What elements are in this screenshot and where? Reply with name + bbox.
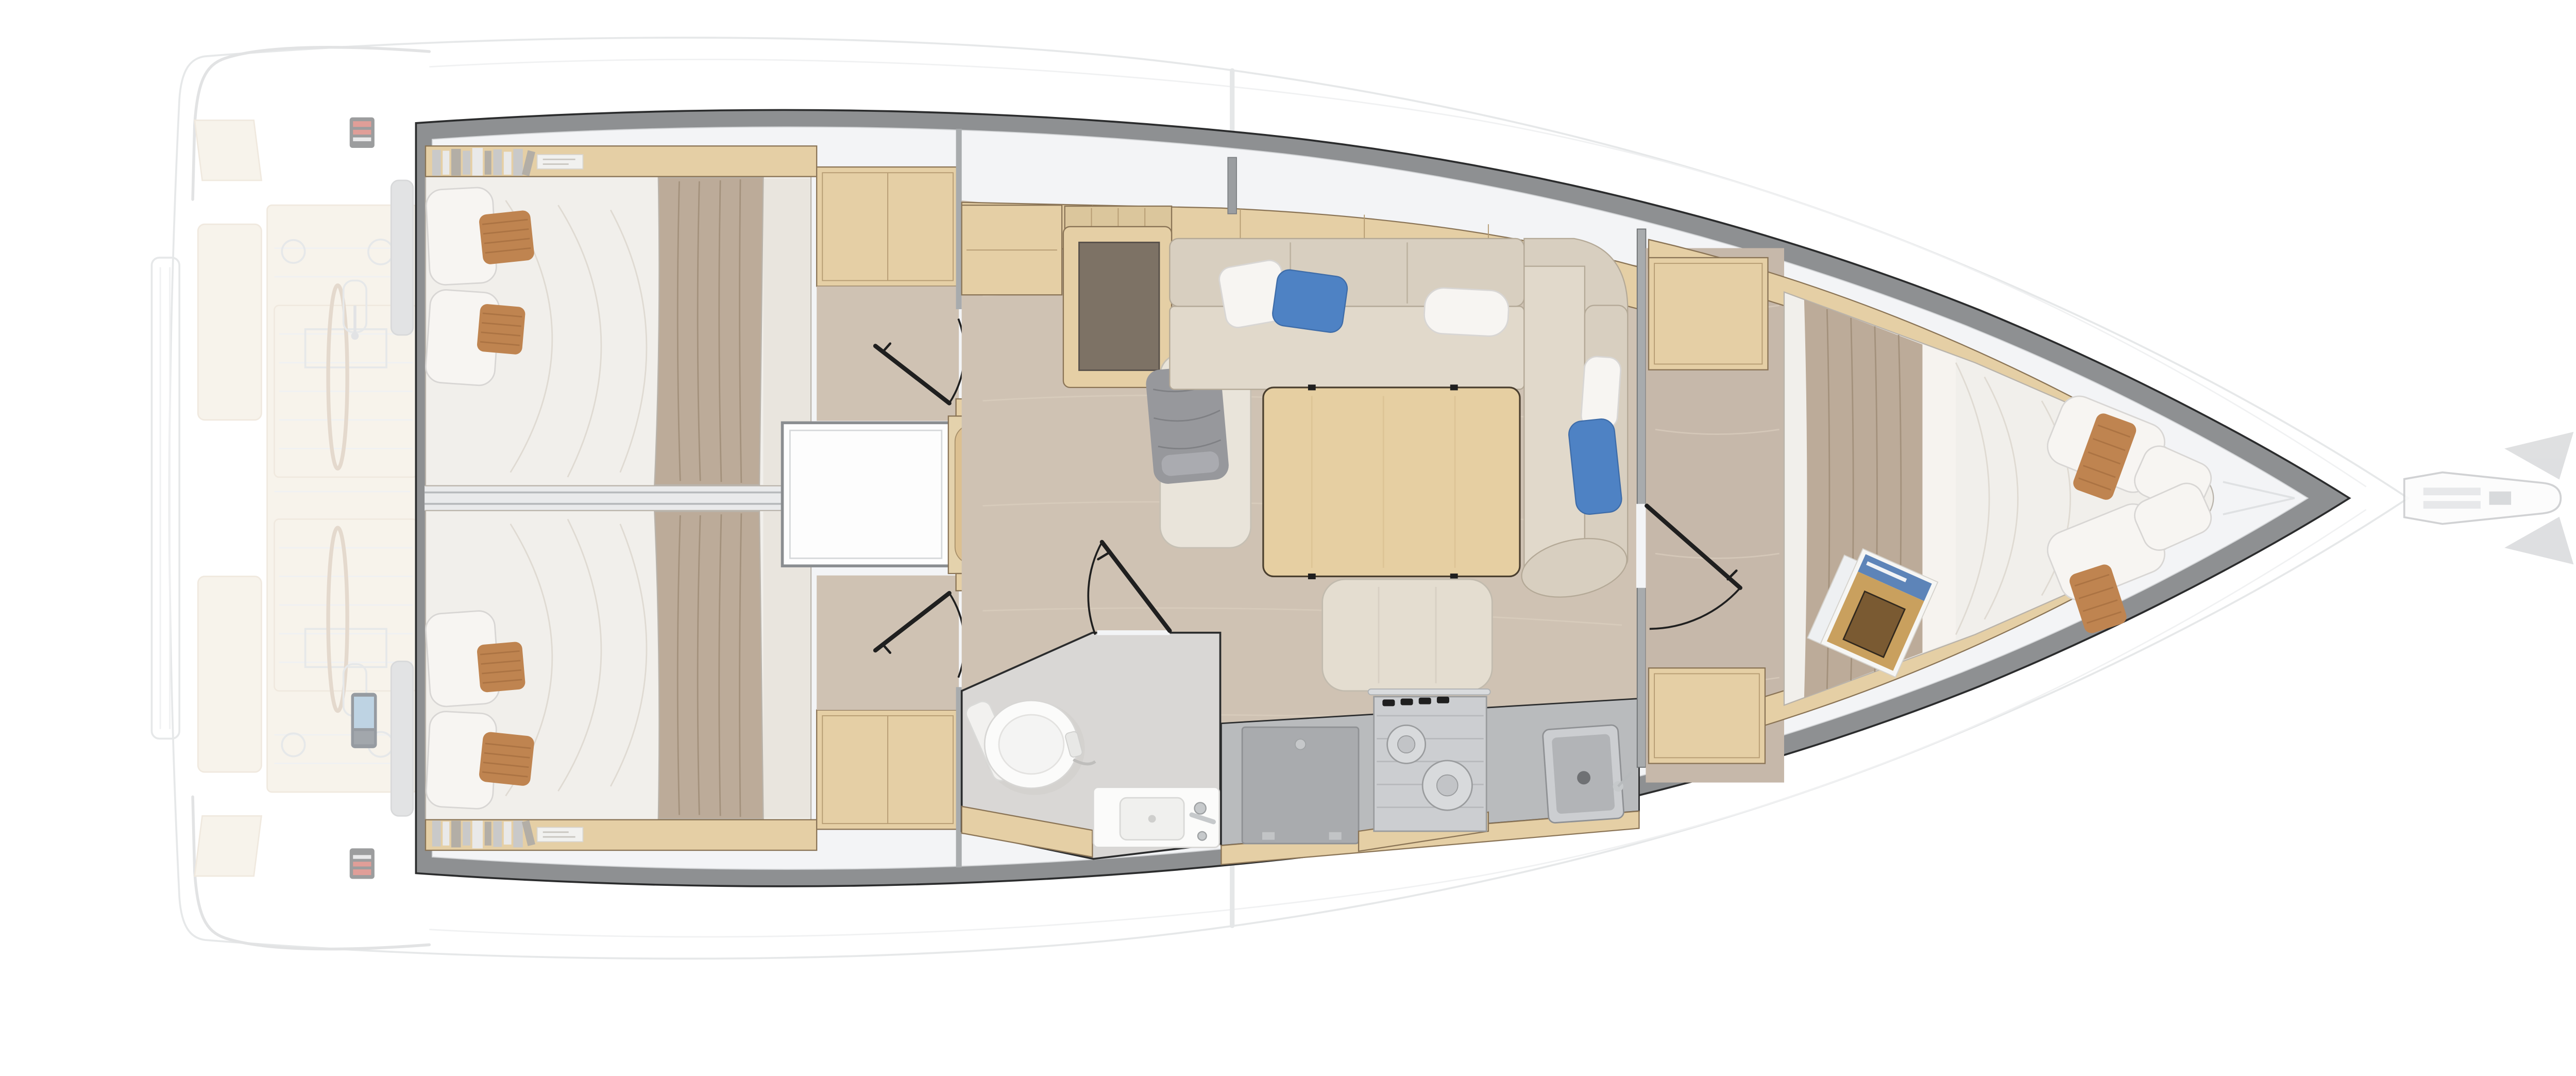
anchor-fluke-top	[2504, 432, 2573, 480]
cockpit-bench-port	[198, 224, 261, 420]
vanity-sink	[1093, 787, 1219, 848]
anchor-roller	[2424, 487, 2481, 495]
cockpit-pad-port	[195, 120, 262, 180]
fridge-top-loader	[1242, 727, 1359, 844]
galley-sink	[1543, 725, 1632, 823]
bowsprit	[2404, 473, 2561, 524]
cockpit-bench-starboard	[198, 577, 261, 772]
wardrobe-forward-top	[1649, 258, 1768, 370]
anchor-fluke-bottom	[2504, 517, 2573, 565]
salon-table	[1263, 384, 1520, 579]
stove	[1359, 689, 1490, 851]
centerline-wall	[425, 486, 817, 511]
bow-gear	[2404, 432, 2574, 564]
berth-blanket	[654, 177, 763, 484]
chart-table-top	[1079, 242, 1159, 370]
mast-post	[1228, 158, 1236, 214]
cockpit-teak	[195, 120, 417, 876]
forward-bulkhead	[1637, 229, 1646, 767]
wardrobe-forward-bottom	[1649, 668, 1765, 763]
anchor-roller	[2424, 501, 2481, 509]
booklet	[537, 155, 583, 169]
swim-platform	[151, 258, 179, 738]
engine-compartment	[783, 423, 950, 566]
cockpit-pad-starboard	[195, 816, 262, 876]
sofa-seat-right	[1524, 266, 1585, 574]
helm-seat-starboard	[391, 661, 413, 816]
yacht-floor-plan	[0, 0, 2576, 996]
sheet-fold	[1922, 345, 1956, 653]
helm-seat-port	[391, 180, 413, 335]
book-shelf	[426, 146, 817, 176]
forward-door-opening	[1636, 504, 1647, 588]
roller-pin	[2489, 492, 2511, 505]
ottoman	[1323, 579, 1493, 691]
floor-plan-stage	[0, 0, 2576, 996]
